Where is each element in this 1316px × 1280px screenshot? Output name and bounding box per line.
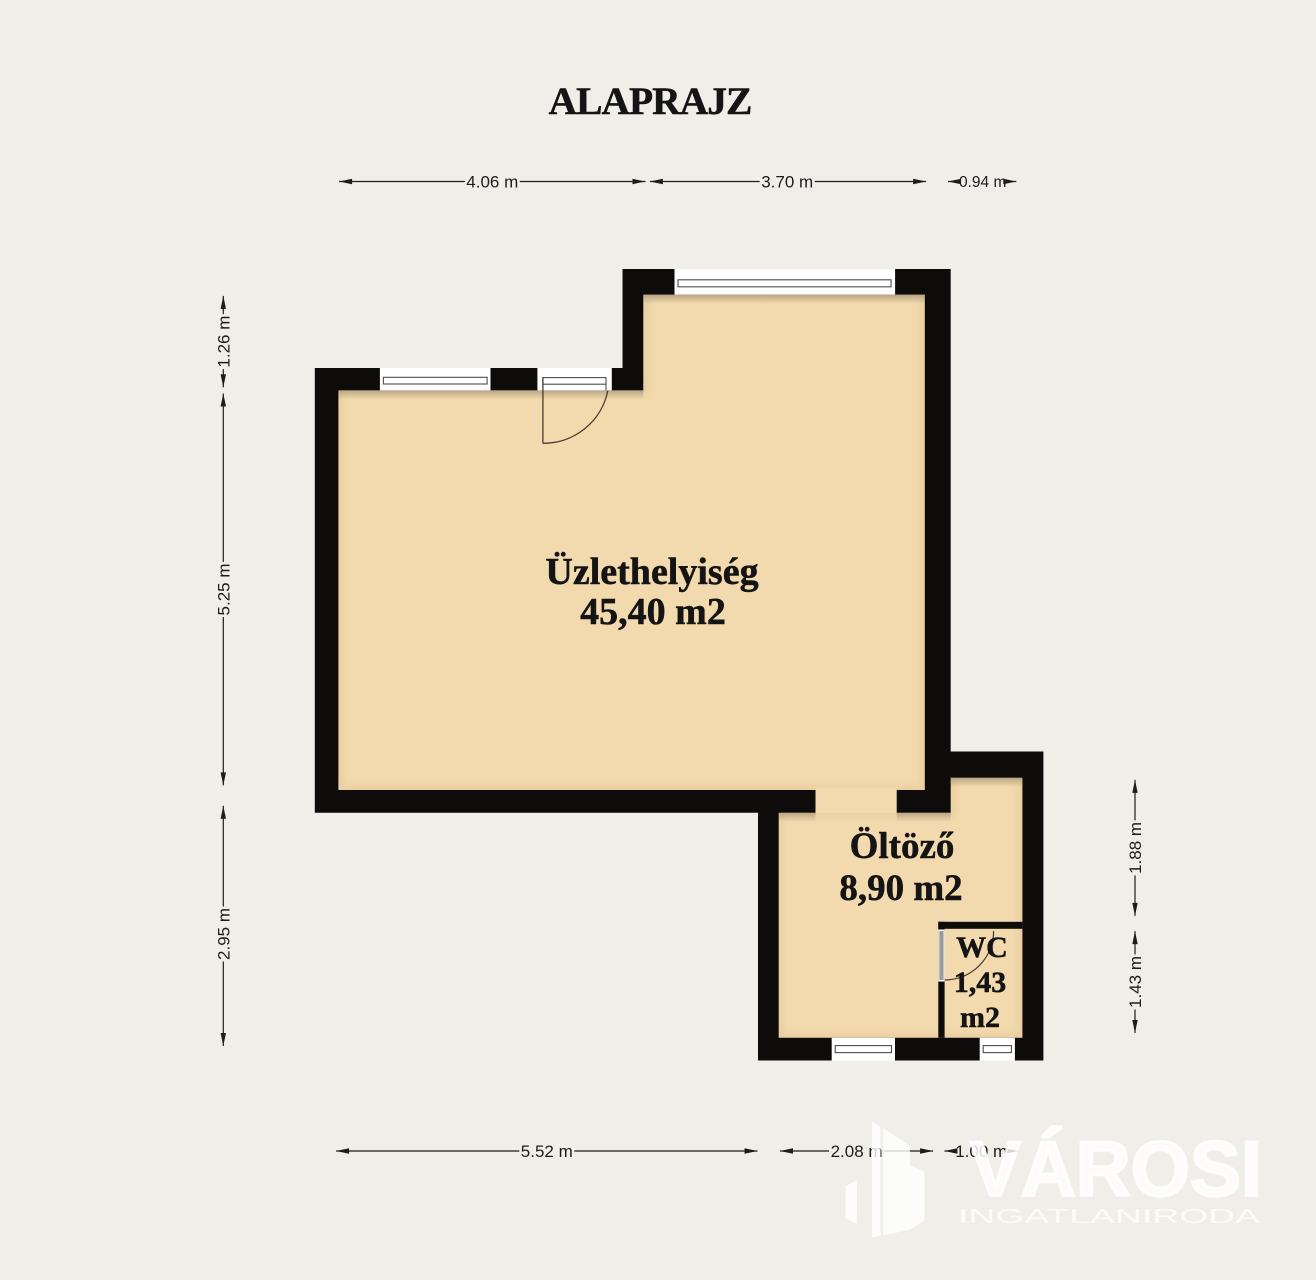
svg-text:45,40 m2: 45,40 m2: [580, 591, 726, 633]
svg-text:1,43: 1,43: [954, 966, 1007, 999]
svg-text:1.88 m: 1.88 m: [1126, 822, 1145, 874]
svg-text:4.06 m: 4.06 m: [466, 173, 518, 192]
svg-text:5.25 m: 5.25 m: [214, 564, 233, 616]
svg-text:Üzlethelyiség: Üzlethelyiség: [545, 551, 758, 593]
svg-text:3.70 m: 3.70 m: [761, 173, 813, 192]
svg-text:INGATLANIRODA: INGATLANIRODA: [958, 1205, 1261, 1228]
svg-text:8,90 m2: 8,90 m2: [839, 868, 962, 909]
svg-text:1.26 m: 1.26 m: [214, 316, 233, 368]
svg-text:ALAPRAJZ: ALAPRAJZ: [549, 79, 752, 123]
svg-text:2.95 m: 2.95 m: [214, 908, 233, 960]
svg-text:1.43 m: 1.43 m: [1126, 956, 1145, 1008]
svg-text:0.94 m: 0.94 m: [959, 174, 1006, 191]
svg-text:5.52 m: 5.52 m: [521, 1142, 573, 1161]
svg-text:Öltöző: Öltöző: [850, 826, 955, 867]
svg-text:m2: m2: [960, 1001, 1000, 1034]
svg-text:VÁROSI: VÁROSI: [970, 1125, 1262, 1213]
svg-text:WC: WC: [956, 931, 1008, 964]
